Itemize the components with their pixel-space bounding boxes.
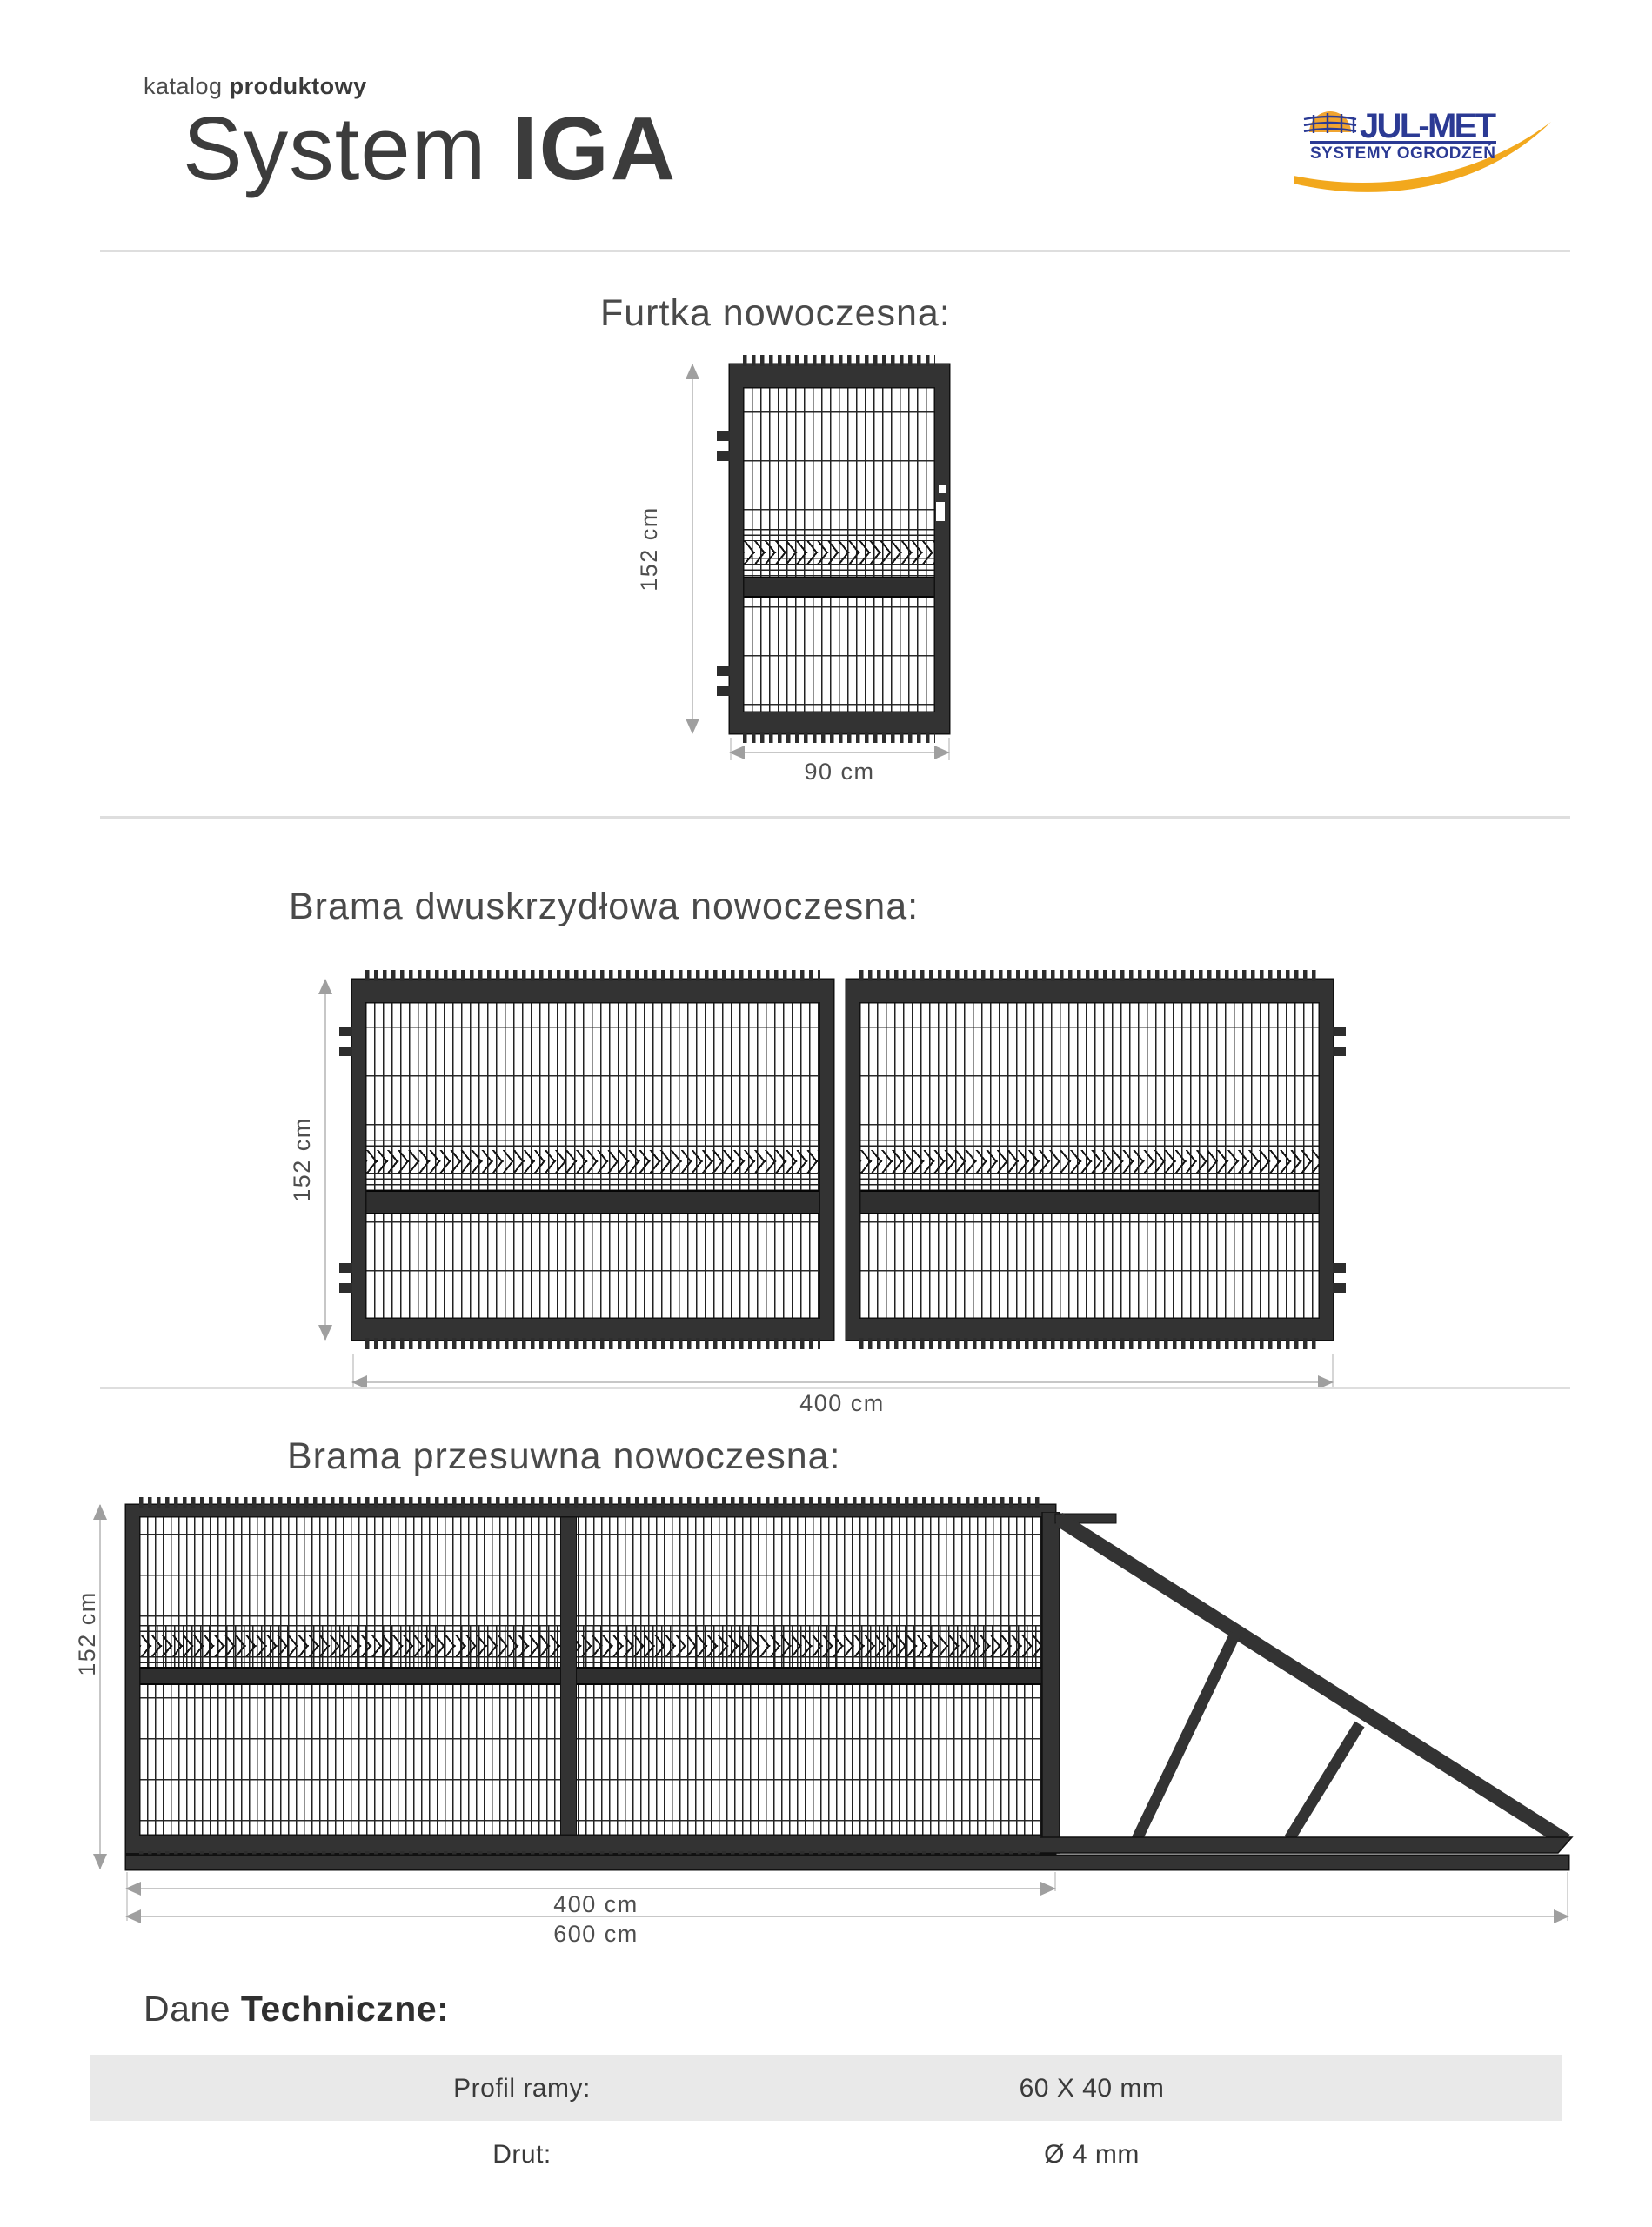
tech-row-label: Profil ramy: [261, 2074, 783, 2103]
width-dimension-line [352, 1381, 1333, 1383]
przesuwna-height-label: 152 cm [72, 1564, 102, 1703]
hinge-icon [339, 1263, 352, 1293]
kicker-light: katalog [144, 73, 223, 99]
hinge-icon [1333, 1027, 1346, 1056]
furtka-drawing [730, 364, 949, 733]
width-dimension-line [730, 752, 949, 753]
section-heading-furtka: Furtka nowoczesna: [600, 292, 951, 335]
counterbalance-triangle [1040, 1512, 1579, 1870]
section-heading-przesuwna: Brama przesuwna nowoczesna: [287, 1435, 840, 1478]
header-divider [100, 250, 1570, 252]
wire-tips-top [743, 355, 935, 366]
tech-row-label: Drut: [261, 2140, 783, 2170]
logo-divider [1310, 141, 1496, 144]
tech-heading: Dane Techniczne: [144, 1989, 449, 2030]
furtka-height-label: 152 cm [634, 479, 664, 619]
furtka-width-label: 90 cm [752, 759, 926, 786]
logo-title: JUL-MET [1360, 107, 1496, 145]
wire-tips-bottom [743, 732, 935, 743]
page-title-bold: IGA [512, 98, 677, 198]
tech-row-value: 60 X 40 mm [831, 2074, 1353, 2103]
lock-hole [939, 485, 946, 493]
gate-frame [730, 364, 949, 733]
dwuskrzydlowa-height-label: 152 cm [287, 1090, 317, 1229]
section-heading-dwuskrzydlowa: Brama dwuskrzydłowa nowoczesna: [289, 886, 919, 928]
height-dimension-line [692, 364, 693, 733]
height-dimension-line [324, 980, 326, 1340]
logo-subtitle: SYSTEMY OGRODZEŃ [1310, 144, 1495, 163]
gate-frame [846, 980, 1333, 1340]
hinge-icon [717, 431, 730, 461]
gate-wing-right [846, 980, 1333, 1340]
gate-wing-left [352, 980, 833, 1340]
catalog-kicker: katalog produktowy [144, 73, 367, 100]
gate-frame [352, 980, 833, 1340]
dwuskrzydlowa-width-label: 400 cm [755, 1390, 929, 1417]
bottom-rail [126, 1856, 1568, 1869]
hinge-icon [717, 666, 730, 696]
section-divider [100, 1387, 1570, 1389]
sliding-gate-drawing [126, 1505, 1055, 1853]
page-title-light: System [183, 98, 486, 198]
section-divider [100, 816, 1570, 819]
tech-heading-light: Dane [144, 1989, 231, 2029]
gate-frame [126, 1505, 1055, 1853]
gate-width-dimension-line [126, 1888, 1055, 1889]
tech-heading-bold: Techniczne: [241, 1989, 449, 2029]
hinge-icon [339, 1027, 352, 1056]
hinge-icon [1333, 1263, 1346, 1293]
kicker-bold: produktowy [230, 73, 367, 99]
przesuwna-total-width-label: 600 cm [509, 1921, 683, 1948]
lock-slot [936, 502, 945, 521]
tech-row-value: Ø 4 mm [831, 2140, 1353, 2170]
page-title: System IGA [183, 97, 677, 200]
total-width-dimension-line [126, 1916, 1568, 1917]
przesuwna-gate-width-label: 400 cm [509, 1891, 683, 1918]
company-logo: JUL-MET SYSTEMY OGRODZEŃ [1279, 74, 1575, 213]
